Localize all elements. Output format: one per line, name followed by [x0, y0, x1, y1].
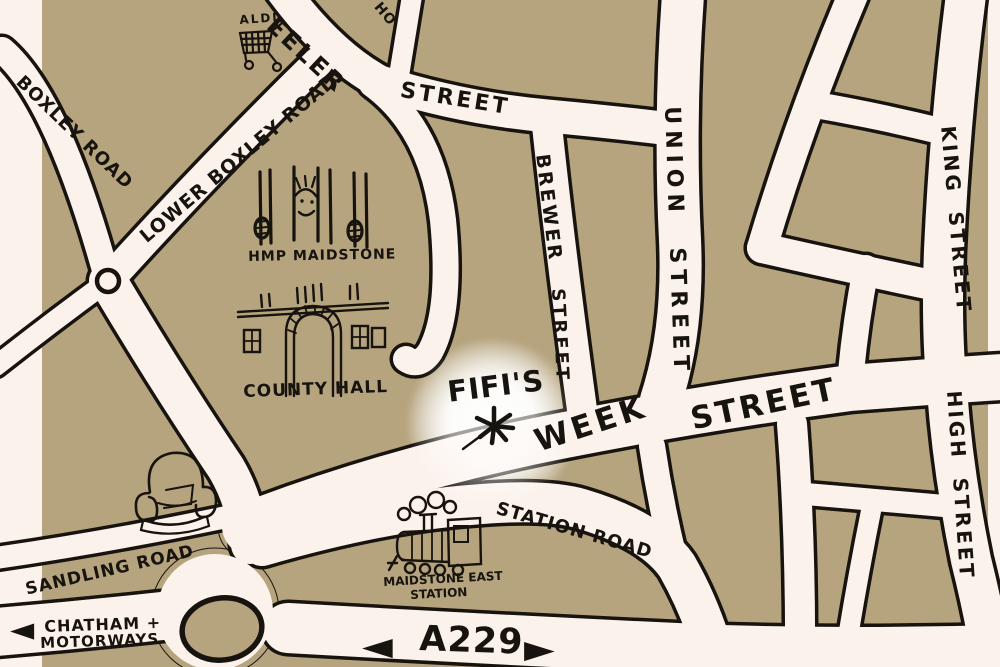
landmark-label-station-line2: STATION	[410, 586, 468, 601]
mini-roundabout-icon	[97, 270, 119, 292]
chatham-west-arrow-icon: ◀	[10, 620, 36, 641]
a229-east-arrow-icon: ▶	[524, 637, 556, 662]
landmark-label-hmp-maidstone: HMP MAIDSTONE	[248, 247, 396, 264]
direction-label-chatham-line2: MOTORWAYS	[40, 632, 159, 651]
landmark-label-aldi: ALDI	[239, 11, 279, 26]
street-label-brewer-street-word2: STREET	[548, 288, 571, 383]
maidstone-hand-drawn-map: BOXLEY ROAD LOWER BOXLEY ROAD EELER STRE…	[0, 0, 1000, 667]
landmark-label-county-hall: COUNTY HALL	[243, 379, 388, 401]
a229-west-arrow-icon: ◀	[362, 634, 394, 659]
route-label-a229: A229	[419, 622, 524, 661]
